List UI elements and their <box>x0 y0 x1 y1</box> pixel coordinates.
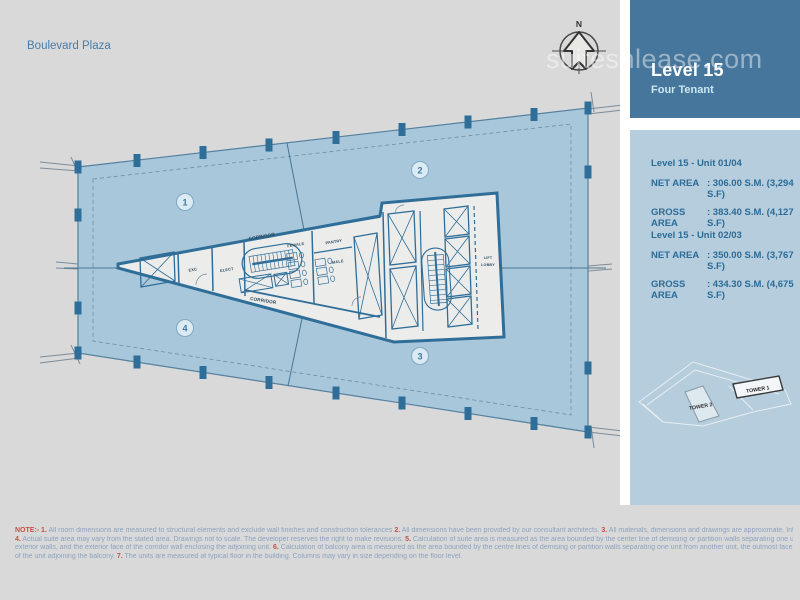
brochure-page: Boulevard Plaza <box>0 0 800 600</box>
note-line: exterior walls, and the exterior face of… <box>15 544 793 553</box>
net-area-value: : 350.00 S.M. (3,767 S.F) <box>707 250 796 272</box>
gross-area-value: : 434.30 S.M. (4,675 S.F) <box>707 279 796 301</box>
site-map: TOWER 2 TOWER 1 <box>633 352 797 440</box>
svg-text:1: 1 <box>182 197 187 207</box>
unit-marker-1: 1 <box>177 194 194 211</box>
svg-text:4: 4 <box>182 323 187 333</box>
sidebar-header: Level 15 Four Tenant <box>630 0 800 118</box>
unit-info-block-2: Level 15 - Unit 02/03 NET AREA : 350.00 … <box>651 230 796 308</box>
unit-marker-4: 4 <box>177 320 194 337</box>
info-panel: Level 15 - Unit 01/04 NET AREA : 306.00 … <box>630 130 800 505</box>
net-area-value: : 306.00 S.M. (3,294 S.F) <box>707 178 796 200</box>
unit-marker-2: 2 <box>412 162 429 179</box>
floor-plan: 1 2 3 4 <box>0 0 625 530</box>
tower-2-footprint: TOWER 2 <box>685 386 719 422</box>
gross-area-row: GROSS AREA : 434.30 S.M. (4,675 S.F) <box>651 279 796 301</box>
note-line: NOTE:- 1. All room dimensions are measur… <box>15 527 793 536</box>
gross-area-label: GROSS AREA <box>651 207 707 229</box>
label-lift-lobby: LOBBY <box>481 263 495 267</box>
sidebar: Level 15 Four Tenant Level 15 - Unit 01/… <box>620 0 800 505</box>
net-area-label: NET AREA <box>651 178 707 200</box>
net-area-label: NET AREA <box>651 250 707 272</box>
label-lift: LIFT <box>484 256 493 260</box>
compass-north-label: N <box>576 19 582 29</box>
note-line: of the unit adjoining the balcony. 7. Th… <box>15 553 793 562</box>
notes-section: NOTE:- 1. All room dimensions are measur… <box>15 527 793 561</box>
unit-name: Level 15 - Unit 01/04 <box>651 158 796 169</box>
gross-area-row: GROSS AREA : 383.40 S.M. (4,127 S.F) <box>651 207 796 229</box>
compass: N <box>552 19 606 74</box>
gross-area-label: GROSS AREA <box>651 279 707 301</box>
unit-marker-3: 3 <box>412 348 429 365</box>
level-subtitle: Four Tenant <box>651 84 800 96</box>
level-title: Level 15 <box>651 60 800 81</box>
tower-1-footprint: TOWER 1 <box>733 376 783 398</box>
unit-info-block-1: Level 15 - Unit 01/04 NET AREA : 306.00 … <box>651 158 796 236</box>
net-area-row: NET AREA : 350.00 S.M. (3,767 S.F) <box>651 250 796 272</box>
note-line: 4. Actual suite area may vary from the s… <box>15 536 793 545</box>
svg-text:3: 3 <box>417 351 422 361</box>
net-area-row: NET AREA : 306.00 S.M. (3,294 S.F) <box>651 178 796 200</box>
svg-text:2: 2 <box>417 165 422 175</box>
unit-name: Level 15 - Unit 02/03 <box>651 230 796 241</box>
gross-area-value: : 383.40 S.M. (4,127 S.F) <box>707 207 796 229</box>
